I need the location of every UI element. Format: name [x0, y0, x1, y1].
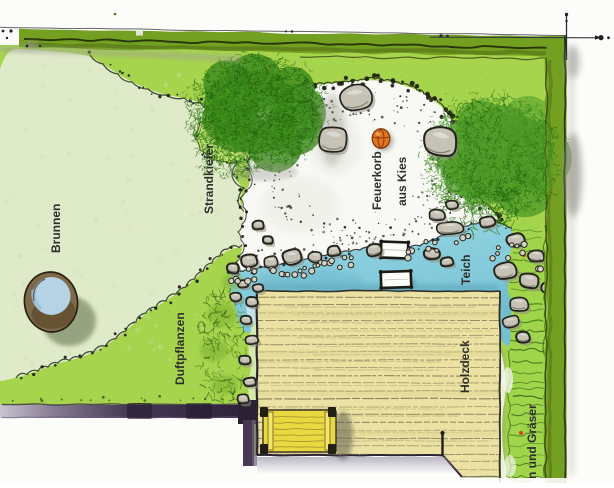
- svg-text:Strandkiefer: Strandkiefer: [202, 144, 216, 214]
- svg-text:Feuerkorb: Feuerkorb: [370, 151, 384, 210]
- svg-text:Brunnen: Brunnen: [49, 204, 63, 253]
- svg-text:Duftpflanzen: Duftpflanzen: [173, 312, 187, 385]
- svg-text:Holzdeck: Holzdeck: [458, 340, 472, 393]
- svg-text:aus Kies: aus Kies: [395, 156, 409, 206]
- svg-text:Teich: Teich: [459, 255, 473, 285]
- svg-text:n und Gräser: n und Gräser: [525, 404, 539, 479]
